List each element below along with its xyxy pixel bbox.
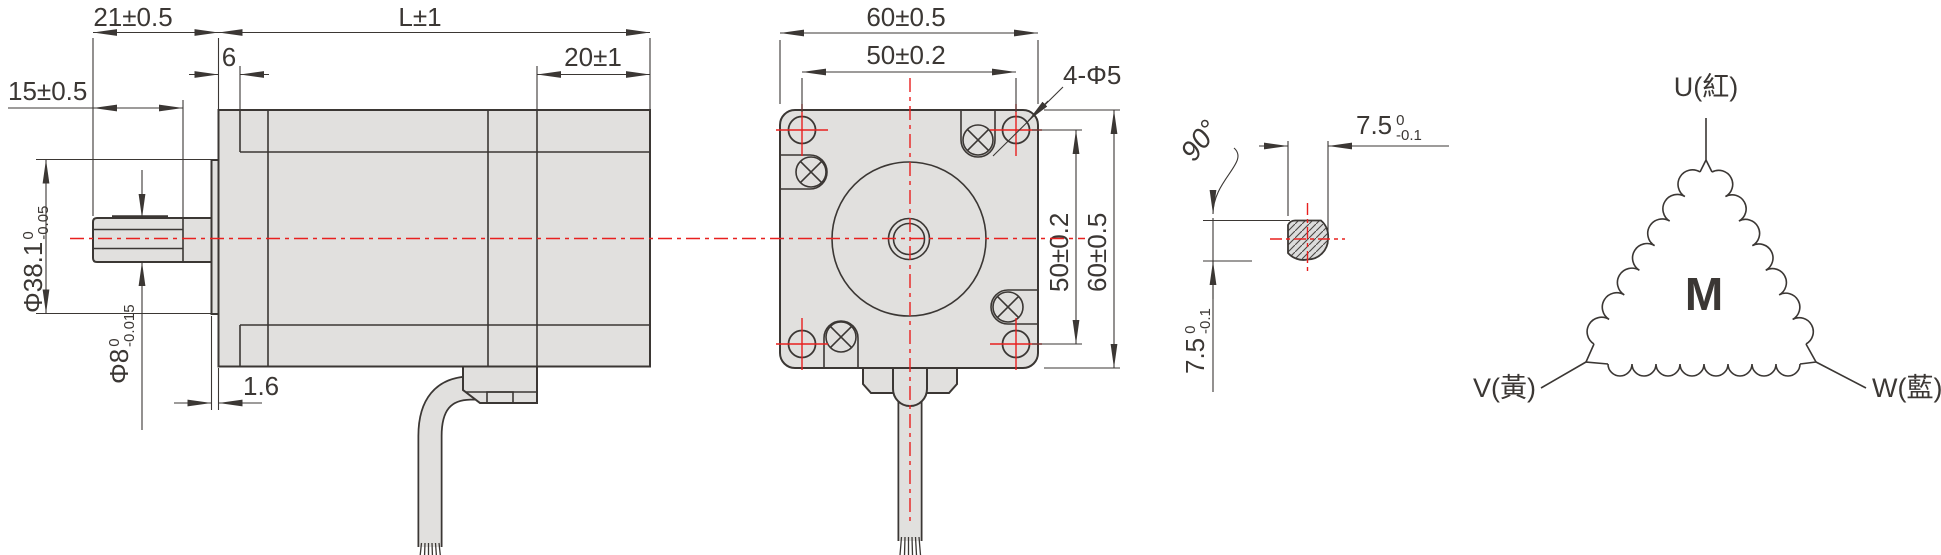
motor-dimension-drawing: 21±0.5 L±1 6 15±0.5 20±1 Φ38.10-0.05 Φ80… xyxy=(0,0,1941,555)
terminal-housing xyxy=(463,367,537,404)
dim-50-right-label: 50±0.2 xyxy=(1044,213,1074,292)
phase-u-label: U(紅) xyxy=(1674,72,1738,102)
shaft-section-detail: 7.50-0.1 7.50-0.1 90° xyxy=(1174,110,1449,392)
phase-v-label: V(黃) xyxy=(1473,373,1536,403)
dim-50-top-label: 50±0.2 xyxy=(866,40,945,70)
side-cable xyxy=(420,388,489,555)
dim-1p6-label: 1.6 xyxy=(243,371,279,401)
flat-angle-label: 90° xyxy=(1174,114,1224,166)
dim-60-right-label: 60±0.5 xyxy=(1082,213,1112,292)
winding-diagram: M U(紅) V(黃) W(藍) xyxy=(1473,72,1941,403)
dim-L-label: L±1 xyxy=(398,2,441,32)
holes-callout-label: 4-Φ5 xyxy=(1063,60,1121,90)
dim-boss-dia-label: Φ38.10-0.05 xyxy=(18,206,52,313)
dim-6-label: 6 xyxy=(222,42,236,72)
winding-leads xyxy=(1541,118,1866,388)
dim-21-label: 21±0.5 xyxy=(93,2,172,32)
side-view: 21±0.5 L±1 6 15±0.5 20±1 Φ38.10-0.05 Φ80… xyxy=(8,2,650,555)
shaft-section-crosshair xyxy=(1270,203,1345,274)
dim-60-top-label: 60±0.5 xyxy=(866,2,945,32)
dim-shaft-dia-label: Φ80-0.015 xyxy=(104,304,138,384)
drawing-canvas: 21±0.5 L±1 6 15±0.5 20±1 Φ38.10-0.05 Φ80… xyxy=(0,0,1941,555)
phase-w-label: W(藍) xyxy=(1872,373,1941,403)
dim-15-label: 15±0.5 xyxy=(8,76,87,106)
dim-flat-height-label: 7.50-0.1 xyxy=(1180,308,1214,374)
dim-flat-width-label: 7.50-0.1 xyxy=(1356,110,1422,144)
motor-symbol: M xyxy=(1685,268,1723,320)
dim-20-label: 20±1 xyxy=(564,42,622,72)
pilot-boss xyxy=(212,160,219,314)
front-view: 60±0.5 50±0.2 4-Φ5 50±0.2 60±0.5 xyxy=(776,2,1121,555)
motor-shaft xyxy=(93,218,212,262)
